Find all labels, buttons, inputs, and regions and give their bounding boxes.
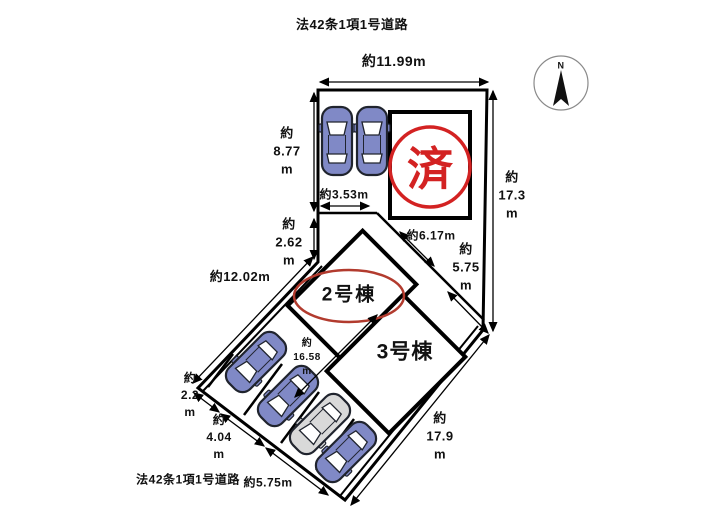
site-plan: 法42条1項1号道路 約11.99m 約 8.77 m 約 2.62 m 約3.… (0, 0, 705, 525)
sold-stamp-text: 済 (407, 137, 453, 201)
dim-inner-diag-a: 約6.17m (406, 228, 455, 245)
dim-frontage-c: 約5.75m (243, 475, 292, 492)
dim-right-height: 約 17.3 m (498, 169, 525, 224)
dim-inner-diag-b: 約 5.75 m (452, 241, 479, 296)
road-label-bottom: 法42条1項1号道路 (136, 472, 240, 489)
dim-frontage-b: 約 4.04 m (206, 412, 231, 462)
compass-north-label: N (558, 60, 565, 73)
car-icon (354, 107, 390, 175)
dim-southeast-boundary: 約 17.9 m (426, 410, 453, 465)
dim-parking-width: 約3.53m (319, 187, 368, 204)
unit2-label: 2号棟 (322, 283, 377, 310)
dim-top-width: 約11.99m (362, 52, 426, 72)
site-plan-canvas (0, 0, 705, 525)
dim-west-boundary: 約12.02m (210, 268, 271, 286)
unit3-label: 3号棟 (377, 337, 434, 366)
dim-frontage-a: 約 2.2 m (181, 370, 199, 420)
north-arrow-icon (553, 70, 569, 106)
car-icon (319, 107, 355, 175)
road-label-top: 法42条1項1号道路 (296, 16, 408, 34)
dim-left-upper: 約 8.77 m (273, 125, 300, 180)
dim-driveway-length: 約 16.58 m (293, 337, 321, 379)
dim-left-lower: 約 2.62 m (275, 216, 302, 271)
